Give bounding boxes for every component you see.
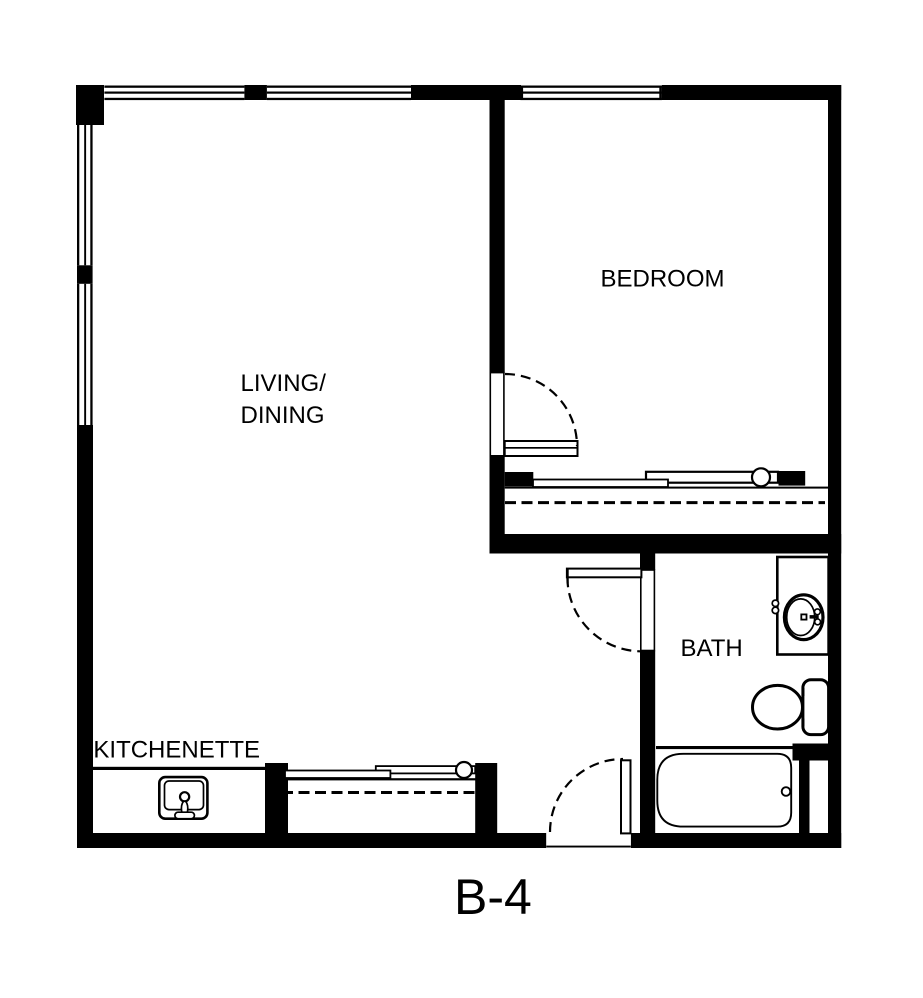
svg-text:DINING: DINING (241, 402, 325, 429)
svg-text:B-4: B-4 (454, 869, 532, 925)
svg-text:BATH: BATH (681, 635, 743, 662)
svg-text:BEDROOM: BEDROOM (601, 266, 725, 293)
svg-text:LIVING/: LIVING/ (241, 370, 327, 397)
svg-text:KITCHENETTE: KITCHENETTE (93, 736, 260, 763)
